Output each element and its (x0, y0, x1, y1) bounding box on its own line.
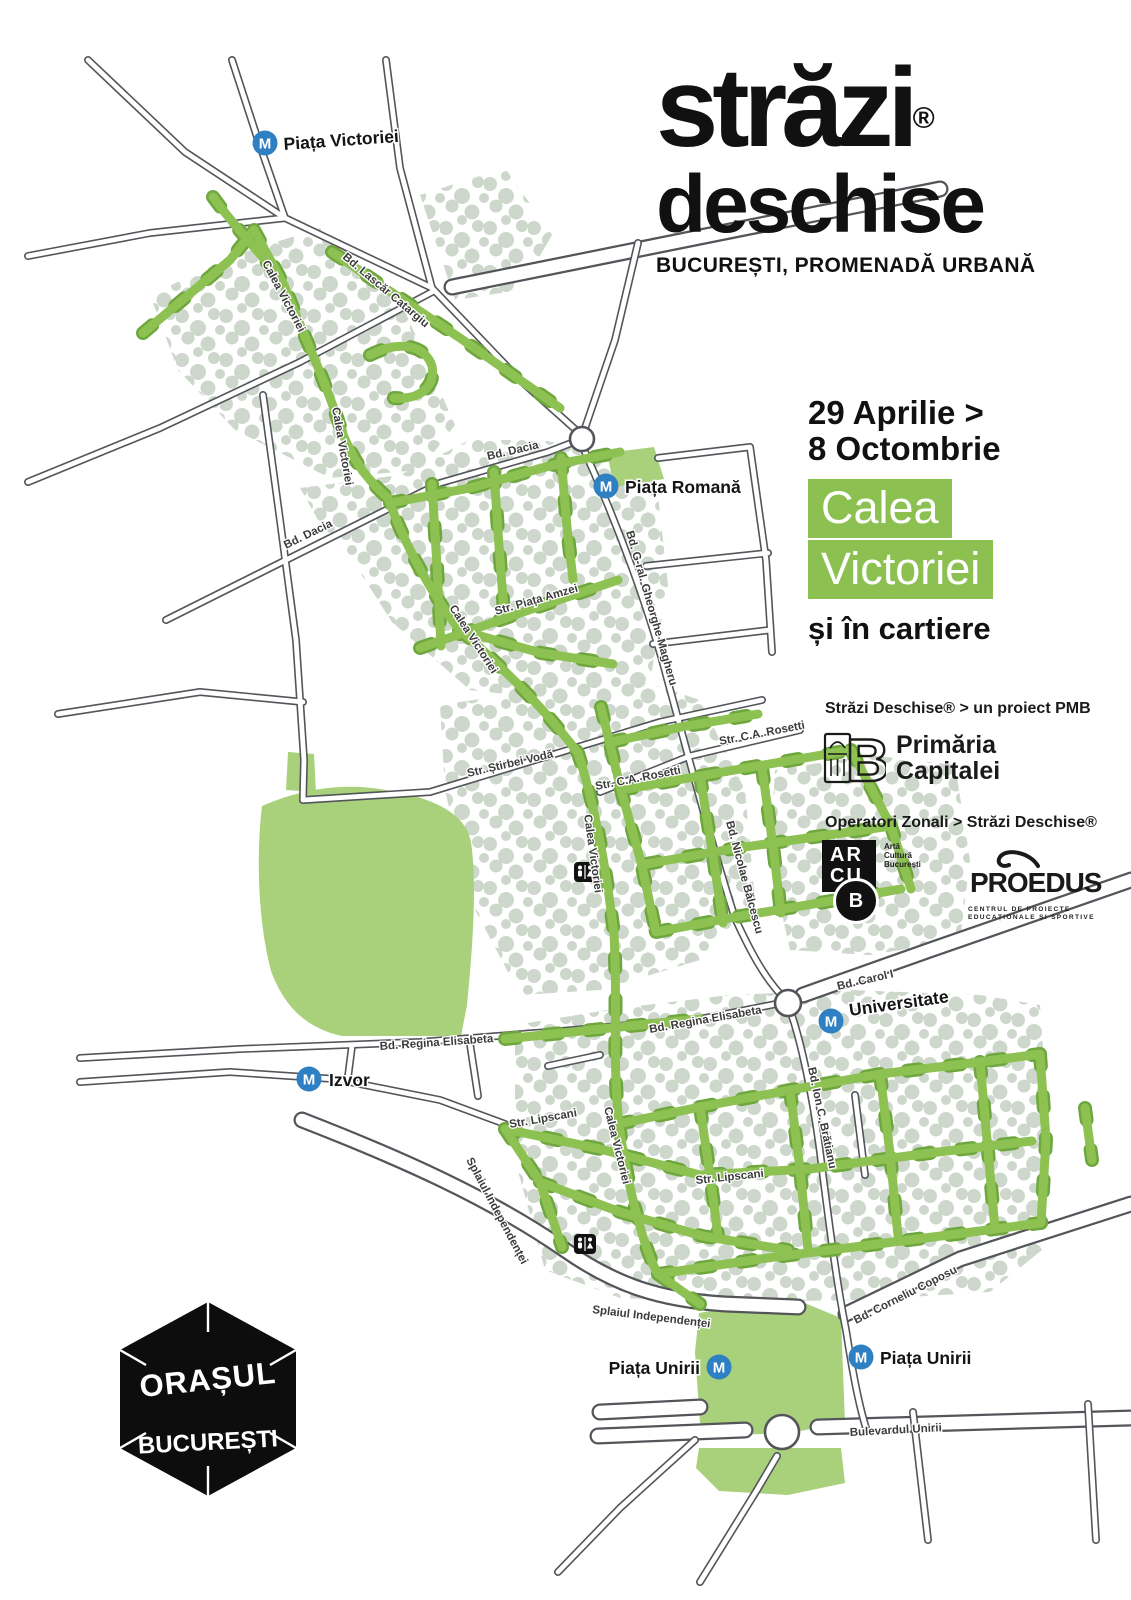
title-wordmark2: deschise (656, 166, 1086, 244)
arcub-side-text: Artă Cultură București (884, 842, 921, 869)
park-cismigiu (259, 787, 474, 1036)
registered-mark: ® (913, 102, 935, 135)
primaria-capitalei-icon: B (822, 728, 886, 788)
pmb-name-line1: Primăria (896, 732, 1000, 758)
wc-icon (574, 1234, 596, 1254)
metro-icon-letter: M (855, 1350, 868, 1367)
roundabout-universitate (775, 990, 801, 1016)
metro-station-piata-unirii-east: M Piața Unirii (849, 1345, 972, 1370)
proedus-name: PROEDUS (970, 867, 1102, 898)
proedus-caption: CENTRUL DE PROIECTE EDUCAȚIONALE ȘI SPOR… (968, 906, 1131, 922)
metro-station-label: Piața Unirii (609, 1358, 700, 1378)
arcub-logo: AR CU B Artă Cultură București (822, 840, 942, 950)
pmb-logo: B Primăria Capitalei (822, 728, 1000, 788)
metro-icon-letter: M (600, 479, 613, 496)
operators-logos: AR CU B Artă Cultură București PROEDUS C… (822, 840, 1131, 950)
title-wordmark-text: străzi (656, 45, 913, 170)
event-info-block: 29 Aprilie > 8 Octombrie Calea Victoriei… (808, 396, 1128, 647)
arcub-badge: B (833, 878, 879, 924)
metro-station-label: Izvor (329, 1070, 370, 1090)
metro-icon-letter: M (259, 136, 272, 153)
proedus-wordmark-icon: PROEDUS (968, 850, 1131, 900)
metro-station-piata-unirii-west: M Piața Unirii (609, 1355, 732, 1380)
proedus-logo: PROEDUS CENTRUL DE PROIECTE EDUCAȚIONALE… (968, 850, 1131, 922)
metro-icon-letter: M (713, 1360, 726, 1377)
operators-caption: Operatori Zonali > Străzi Deschise® (825, 814, 1097, 832)
event-tagline: și în cartiere (808, 611, 1128, 647)
metro-station-piata-victoriei: M Piața Victoriei (253, 126, 400, 156)
title-subtitle: BUCUREȘTI, PROMENADĂ URBANĂ (656, 254, 1086, 278)
highlight-calea: Calea (808, 479, 952, 538)
metro-station-label: Piața Romană (625, 477, 741, 497)
pmb-name-line2: Capitalei (896, 758, 1000, 784)
title-block: străzi® deschise BUCUREȘTI, PROMENADĂ UR… (656, 52, 1086, 278)
roundabout-romana (570, 427, 594, 451)
date-line-2: 8 Octombrie (808, 432, 1128, 465)
date-line-1: 29 Aprilie > (808, 396, 1128, 429)
metro-station-label: Piața Unirii (880, 1348, 971, 1368)
metro-station-izvor: M Izvor (297, 1067, 371, 1092)
pmb-caption: Străzi Deschise® > un proiect PMB (825, 700, 1091, 718)
roundabout-unirii (765, 1415, 799, 1449)
highlight-victoriei: Victoriei (808, 540, 993, 599)
title-wordmark: străzi® (656, 52, 1086, 164)
poster-root: { "title": { "wordmark": "străzi", "regi… (0, 0, 1131, 1600)
metro-icon-letter: M (303, 1072, 316, 1089)
arcub-row1: AR (830, 845, 876, 866)
metro-icon-letter: M (825, 1014, 838, 1031)
svg-text:B: B (846, 728, 886, 788)
orasul-bucuresti-logo: ORAȘUL BUCUREȘTI (114, 1298, 302, 1500)
metro-station-label: Piața Victoriei (283, 126, 400, 154)
street-label: Bd. Regina Elisabeta (379, 1033, 494, 1053)
